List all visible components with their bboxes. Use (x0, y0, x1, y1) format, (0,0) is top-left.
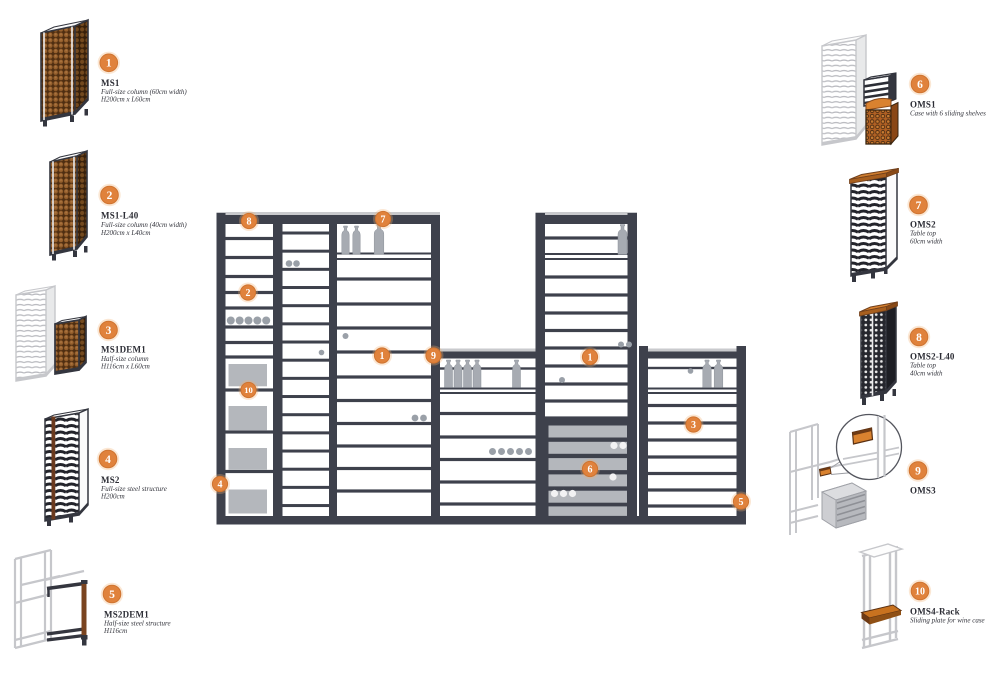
svg-text:2: 2 (246, 288, 251, 299)
svg-text:MS2: MS2 (101, 475, 120, 485)
svg-text:MS1DEM1: MS1DEM1 (101, 345, 146, 355)
svg-text:10: 10 (915, 586, 925, 597)
svg-text:7: 7 (381, 214, 386, 225)
svg-text:OMS4-Rack: OMS4-Rack (910, 607, 960, 617)
svg-text:OMS1: OMS1 (910, 100, 936, 110)
svg-text:OMS2: OMS2 (910, 220, 936, 230)
svg-text:3: 3 (691, 420, 696, 431)
svg-text:7: 7 (916, 200, 922, 212)
svg-text:Sliding plate for wine case: Sliding plate for wine case (910, 617, 985, 625)
svg-text:H200cm x L60cm: H200cm x L60cm (100, 96, 150, 104)
svg-text:1: 1 (106, 58, 112, 70)
svg-text:H200cm: H200cm (100, 493, 125, 501)
svg-text:H116cm x L60cm: H116cm x L60cm (100, 363, 150, 371)
svg-text:9: 9 (915, 465, 921, 477)
svg-text:8: 8 (916, 332, 922, 344)
svg-text:Table top: Table top (910, 230, 936, 238)
svg-text:60cm width: 60cm width (910, 238, 943, 246)
svg-text:5: 5 (109, 589, 115, 601)
svg-text:MS1: MS1 (101, 78, 120, 88)
svg-text:9: 9 (431, 351, 436, 362)
svg-text:Table top: Table top (910, 362, 936, 370)
svg-text:H200cm x L40cm: H200cm x L40cm (100, 229, 150, 237)
svg-text:6: 6 (588, 464, 593, 475)
svg-text:Full-size column (40cm width): Full-size column (40cm width) (100, 221, 187, 229)
svg-text:1: 1 (380, 351, 385, 362)
svg-text:10: 10 (244, 385, 253, 395)
svg-text:4: 4 (218, 479, 223, 490)
svg-text:OMS2-L40: OMS2-L40 (910, 352, 955, 362)
svg-text:40cm width: 40cm width (910, 370, 943, 378)
svg-text:8: 8 (247, 216, 252, 227)
svg-text:OMS3: OMS3 (910, 486, 936, 496)
svg-text:6: 6 (917, 79, 923, 91)
svg-text:H116cm: H116cm (103, 627, 127, 635)
svg-text:4: 4 (105, 454, 111, 466)
svg-text:5: 5 (739, 497, 744, 508)
svg-text:2: 2 (107, 190, 113, 202)
svg-text:1: 1 (588, 352, 593, 363)
svg-text:MS1-L40: MS1-L40 (101, 211, 139, 221)
svg-text:3: 3 (106, 325, 112, 337)
svg-text:MS2DEM1: MS2DEM1 (104, 610, 149, 620)
svg-text:Case with 6 sliding shelves: Case with 6 sliding shelves (910, 110, 986, 118)
